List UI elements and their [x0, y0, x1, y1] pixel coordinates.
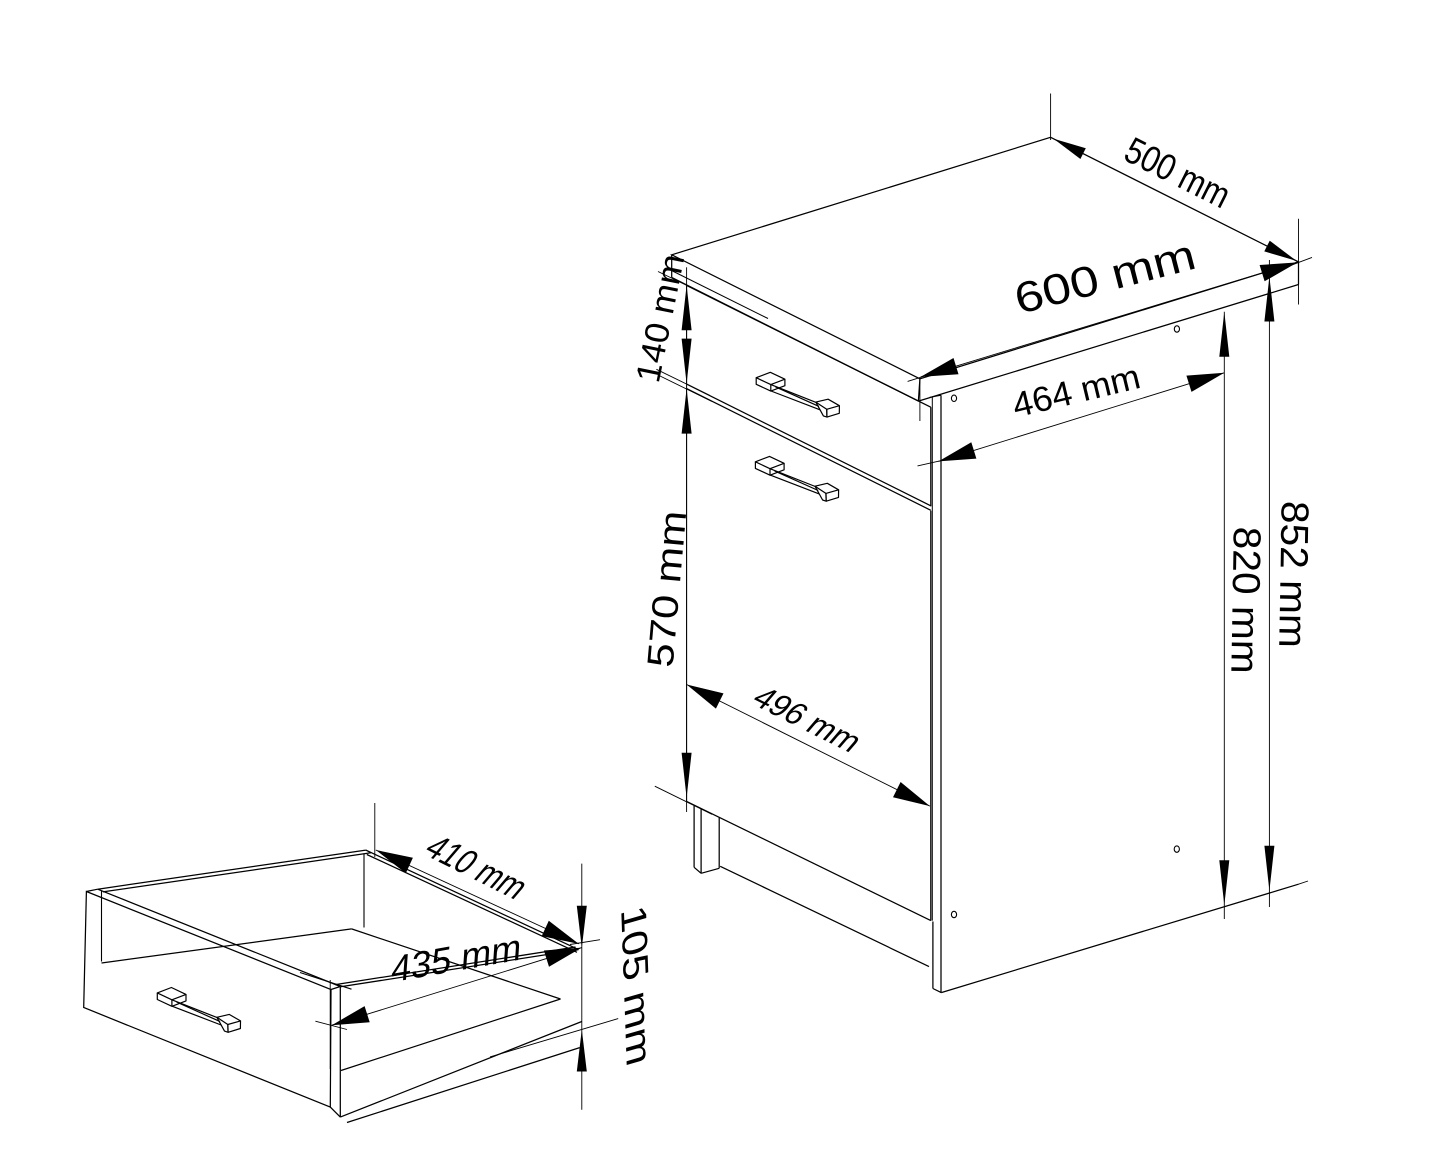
svg-text:852 mm: 852 mm [1270, 501, 1316, 649]
svg-text:820 mm: 820 mm [1222, 526, 1268, 674]
svg-text:105 mm: 105 mm [613, 901, 659, 1070]
